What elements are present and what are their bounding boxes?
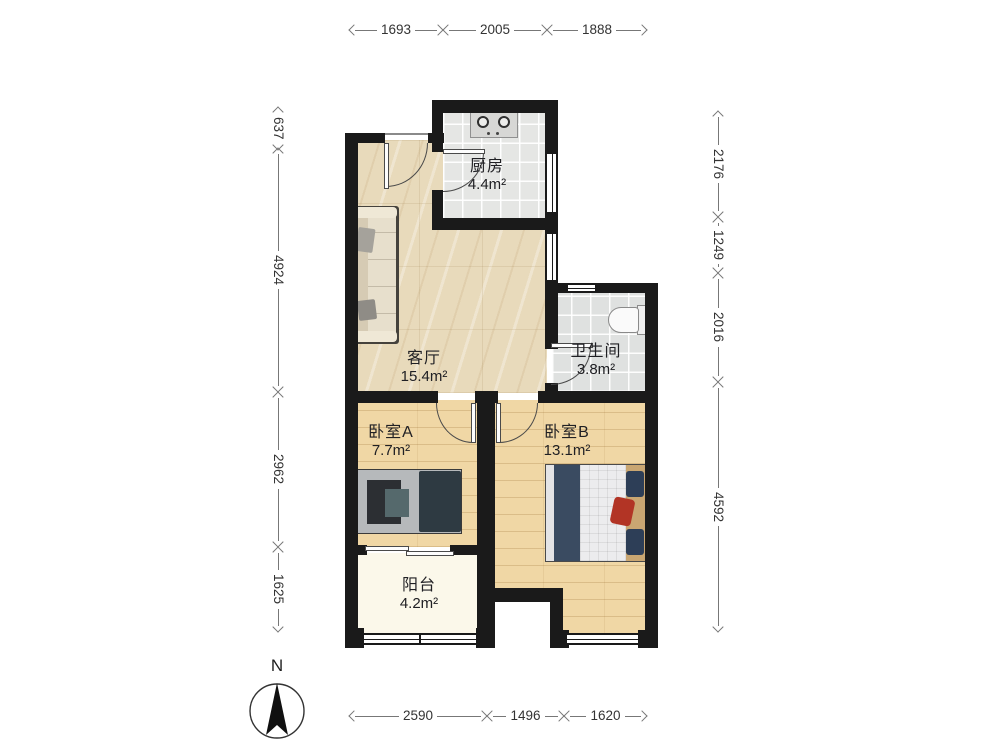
arrow-up-icon bbox=[272, 147, 283, 158]
dim-right-1: 1249 bbox=[710, 218, 726, 272]
dim-top-right: 1888 bbox=[548, 22, 646, 38]
wall bbox=[345, 545, 367, 555]
sofa-pillow bbox=[355, 227, 375, 253]
sofa bbox=[352, 206, 399, 344]
burner bbox=[498, 116, 510, 128]
arrow-left-icon bbox=[348, 24, 359, 35]
dim-label: 4924 bbox=[271, 251, 285, 289]
dim-label: 2016 bbox=[711, 308, 725, 346]
room-name: 阳台 bbox=[400, 577, 438, 595]
arrow-right-icon bbox=[636, 24, 647, 35]
dim-label: 1620 bbox=[586, 709, 624, 723]
arrow-down-icon bbox=[272, 621, 283, 632]
room-label-bathroom: 卫生间 3.8m² bbox=[570, 343, 621, 379]
dim-bottom-right: 1620 bbox=[565, 708, 646, 724]
arrow-up-icon bbox=[712, 272, 723, 283]
sliding-door-panel bbox=[365, 546, 409, 551]
dim-bottom-center: 1496 bbox=[488, 708, 563, 724]
wall bbox=[645, 283, 658, 648]
dim-top-left: 1693 bbox=[350, 22, 442, 38]
bathroom-window bbox=[568, 283, 595, 293]
arrow-up-icon bbox=[272, 391, 283, 402]
compass: N bbox=[246, 656, 308, 748]
wall bbox=[476, 628, 495, 648]
wall bbox=[345, 628, 364, 648]
sofa-pillow bbox=[357, 299, 377, 321]
dim-label: 1625 bbox=[271, 570, 285, 608]
bed-single bbox=[354, 469, 462, 534]
arrow-left-icon bbox=[563, 710, 574, 721]
room-name: 客厅 bbox=[401, 350, 448, 368]
dim-right-0: 2176 bbox=[710, 112, 726, 216]
bed-blanket bbox=[554, 465, 580, 561]
arrow-left-icon bbox=[486, 710, 497, 721]
sliding-door-panel bbox=[406, 551, 454, 556]
sofa-armrest bbox=[354, 331, 397, 342]
dim-label: 1496 bbox=[506, 709, 544, 723]
room-area: 3.8m² bbox=[570, 361, 621, 378]
arrow-left-icon bbox=[348, 710, 359, 721]
entry-door-leaf bbox=[384, 143, 389, 189]
bed-double bbox=[545, 464, 647, 562]
north-arrow-icon bbox=[246, 676, 308, 742]
bedroom-b-door-leaf bbox=[496, 403, 501, 443]
room-name: 卧室B bbox=[544, 424, 591, 442]
room-label-kitchen: 厨房 4.4m² bbox=[468, 158, 506, 194]
dim-label: 2590 bbox=[399, 709, 437, 723]
dim-right-2: 2016 bbox=[710, 274, 726, 381]
floor-plan: 厨房 4.4m² 客厅 15.4m² 卫生间 3.8m² 卧室A 7.7m² 卧… bbox=[0, 0, 1000, 750]
arrow-right-icon bbox=[636, 710, 647, 721]
room-area: 4.2m² bbox=[400, 595, 438, 612]
wall bbox=[545, 283, 558, 349]
dim-left-2: 2962 bbox=[270, 393, 286, 546]
dim-label: 1249 bbox=[711, 226, 725, 264]
wall bbox=[477, 391, 495, 648]
room-name: 卫生间 bbox=[570, 343, 621, 361]
bedroom-a-door-leaf bbox=[471, 403, 476, 443]
arrow-down-icon bbox=[712, 621, 723, 632]
dim-left-1: 4924 bbox=[270, 149, 286, 391]
dim-bottom-left: 2590 bbox=[350, 708, 486, 724]
window-mullion bbox=[419, 633, 421, 645]
arrow-left-icon bbox=[442, 24, 453, 35]
toilet-bowl bbox=[608, 307, 639, 333]
wall bbox=[450, 545, 495, 555]
kitchen-window bbox=[545, 154, 558, 212]
room-label-bedroom-a: 卧室A 7.7m² bbox=[368, 424, 414, 460]
dim-label: 2962 bbox=[271, 450, 285, 488]
stove bbox=[470, 112, 518, 138]
wall bbox=[432, 100, 558, 113]
wall bbox=[545, 100, 558, 154]
room-label-bedroom-b: 卧室B 13.1m² bbox=[544, 424, 591, 460]
bed-throw bbox=[385, 489, 409, 517]
kitchen-door-leaf bbox=[443, 149, 485, 154]
dim-left-0: 637 bbox=[270, 110, 286, 147]
wall bbox=[545, 212, 558, 234]
dim-label: 1888 bbox=[578, 23, 616, 37]
dim-label: 1693 bbox=[377, 23, 415, 37]
room-label-balcony: 阳台 4.2m² bbox=[400, 577, 438, 613]
wall bbox=[345, 391, 438, 403]
living-room-window bbox=[545, 234, 558, 280]
exterior-notch bbox=[495, 600, 553, 648]
compass-n-label: N bbox=[246, 656, 308, 676]
bed-pillow bbox=[626, 529, 644, 555]
arrow-up-icon bbox=[712, 110, 723, 121]
dim-right-3: 4592 bbox=[710, 383, 726, 631]
stove-knob bbox=[496, 132, 499, 135]
dim-label: 4592 bbox=[711, 488, 725, 526]
arrow-up-icon bbox=[272, 546, 283, 557]
dim-label: 2005 bbox=[476, 23, 514, 37]
room-name: 卧室A bbox=[368, 424, 414, 442]
burner bbox=[477, 116, 489, 128]
room-area: 15.4m² bbox=[401, 368, 448, 385]
room-area: 7.7m² bbox=[368, 442, 414, 459]
room-area: 13.1m² bbox=[544, 442, 591, 459]
bed-blanket bbox=[419, 471, 461, 532]
arrow-left-icon bbox=[546, 24, 557, 35]
room-label-living: 客厅 15.4m² bbox=[401, 350, 448, 386]
wall bbox=[638, 630, 658, 648]
wall bbox=[538, 391, 658, 403]
wall bbox=[432, 218, 558, 230]
stove-knob bbox=[487, 132, 490, 135]
dim-left-3: 1625 bbox=[270, 548, 286, 631]
sofa-armrest bbox=[354, 207, 397, 218]
wall bbox=[432, 112, 443, 152]
dim-label: 2176 bbox=[711, 145, 725, 183]
room-name: 厨房 bbox=[468, 158, 506, 176]
entry-threshold bbox=[385, 133, 428, 135]
arrow-up-icon bbox=[712, 381, 723, 392]
room-area: 4.4m² bbox=[468, 176, 506, 193]
bedroom-b-window bbox=[567, 633, 638, 645]
dim-top-center: 2005 bbox=[444, 22, 546, 38]
bed-pillow bbox=[626, 471, 644, 497]
